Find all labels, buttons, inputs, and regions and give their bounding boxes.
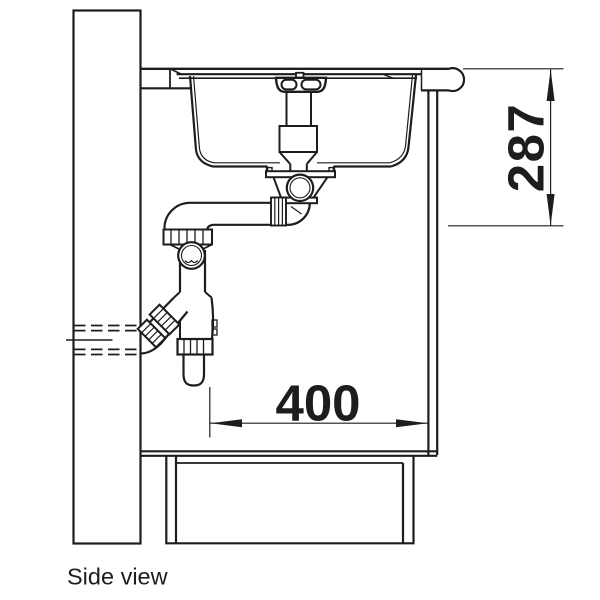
view-caption: Side view — [67, 564, 169, 590]
sink-side-view-drawing: 400 287 Side view — [0, 0, 600, 600]
wall-branch-and-trap — [138, 292, 217, 386]
trap-nut — [178, 339, 213, 355]
drain-tailpiece — [280, 92, 318, 171]
sink-strainer — [276, 73, 326, 92]
dimension-value-vertical: 287 — [498, 103, 555, 193]
arrowhead-bottom — [547, 194, 555, 226]
arrowhead-top — [547, 69, 555, 101]
cabinet-side-panel — [428, 90, 437, 455]
technical-drawing-page: 400 287 Side view — [0, 0, 600, 600]
wall — [74, 11, 141, 544]
dimension-value-horizontal: 400 — [275, 375, 360, 432]
arrowhead-right — [396, 419, 428, 427]
plinth — [165, 457, 414, 544]
pipe-end-cap — [184, 374, 205, 386]
downpipe-ball-joint — [164, 230, 213, 293]
arrowhead-left — [210, 419, 242, 427]
worktop-bullnose-edge — [449, 68, 464, 91]
